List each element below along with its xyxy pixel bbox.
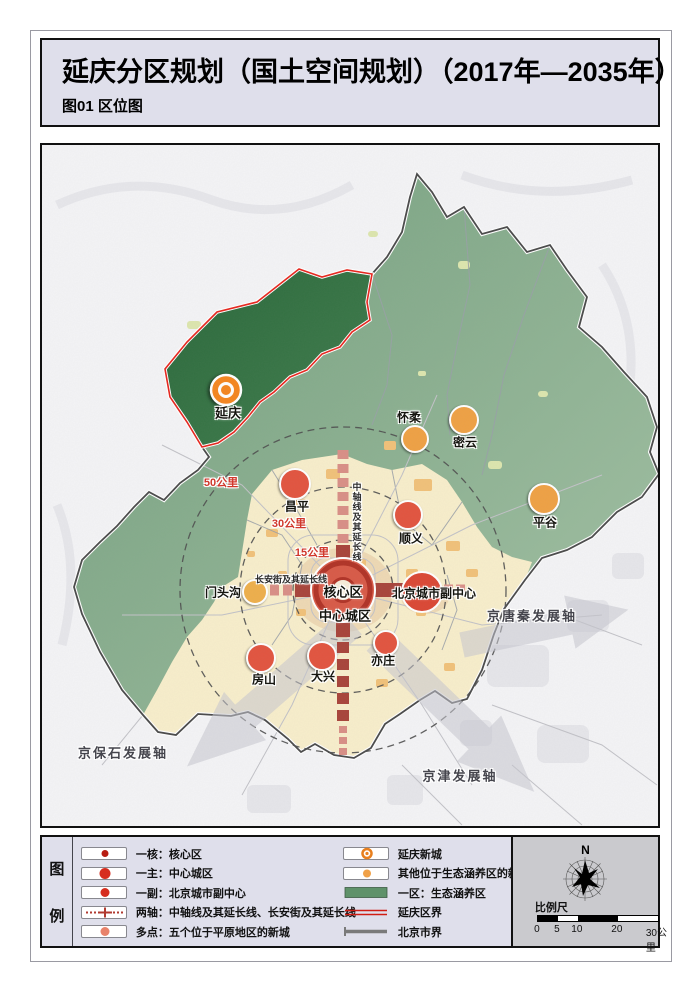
tick-20: 20 xyxy=(611,924,622,935)
label-yizhuang: 亦庄 xyxy=(371,652,395,669)
axis-line-icon xyxy=(81,906,127,919)
legend-item-beijing-border: 北京市界 xyxy=(343,924,511,939)
legend-item-main-city: 一主：中心城区 xyxy=(81,866,343,881)
label-mentougou: 门头沟 xyxy=(205,584,241,601)
legend-item-label: 一副：北京城市副中心 xyxy=(136,885,246,901)
tick-30km: 30公里 xyxy=(646,924,674,954)
label-axis-jingtangqin: 京唐秦发展轴 xyxy=(487,606,577,625)
label-central-city: 中心城区 xyxy=(319,606,371,625)
legend-item-yanqing-border: 延庆区界 xyxy=(343,905,511,920)
label-miyun: 密云 xyxy=(453,434,477,451)
legend-item-core: 一核：核心区 xyxy=(81,846,343,861)
label-core-area: 核心区 xyxy=(323,582,362,601)
label-fangshan: 房山 xyxy=(252,671,276,688)
label-pinggu: 平谷 xyxy=(533,514,557,531)
legend-item-label: 北京市界 xyxy=(398,924,442,940)
tick-10: 10 xyxy=(571,924,582,935)
legend-header: 图 例 xyxy=(42,837,73,946)
scalebar-segment xyxy=(558,916,578,921)
label-axis-jingjin: 京津发展轴 xyxy=(422,766,497,785)
label-daxing: 大兴 xyxy=(311,668,335,685)
scalebar-segment xyxy=(538,916,558,921)
label-axis-jingbaoshi: 京保石发展轴 xyxy=(78,743,168,762)
legend-item-label: 一核：核心区 xyxy=(136,846,202,862)
label-changping: 昌平 xyxy=(285,498,309,515)
eco-zone-swatch-icon xyxy=(343,886,389,899)
beijing-border-line-icon xyxy=(343,925,389,938)
yanqing-border-line-icon xyxy=(343,906,389,919)
scalebar-title: 比例尺 xyxy=(535,899,568,915)
legend-item-eco-zone: 一区：生态涵养区 xyxy=(343,885,511,900)
legend-header-char-1: 图 xyxy=(49,858,64,879)
eco-new-town-dot-icon xyxy=(343,867,389,880)
main-city-dot-icon xyxy=(81,867,127,880)
page: 延庆分区规划（国土空间规划）（2017年—2035年） 图01 区位图 xyxy=(0,0,700,990)
legend-column-right: 延庆新城 其他位于生态涵养区的新城 一区：生态涵养区 延庆区界 xyxy=(343,846,511,939)
sub-center-dot-icon xyxy=(81,886,127,899)
core-dot-icon xyxy=(81,847,127,860)
scalebar-segment xyxy=(618,916,658,921)
legend: 图 例 一核：核心区 一主：中心城区 一副：北京城市副中心 xyxy=(40,835,660,948)
legend-item-label: 多点：五个位于平原地区的新城 xyxy=(136,924,290,940)
scalebar xyxy=(537,915,659,922)
legend-item-label: 一区：生态涵养区 xyxy=(398,885,486,901)
legend-header-char-2: 例 xyxy=(49,905,64,926)
scalebar-segment xyxy=(578,916,618,921)
legend-item-sub-center: 一副：北京城市副中心 xyxy=(81,885,343,900)
label-corridor-changan: 长安街及其延长线 xyxy=(255,573,327,586)
legend-column-left: 一核：核心区 一主：中心城区 一副：北京城市副中心 xyxy=(81,846,343,939)
scale-panel: N 比例尺 0 5 10 xyxy=(511,837,658,946)
legend-item-yanqing-new-town: 延庆新城 xyxy=(343,846,511,861)
page-title: 延庆分区规划（国土空间规划）（2017年—2035年） xyxy=(62,50,658,89)
legend-item-label: 一主：中心城区 xyxy=(136,865,213,881)
legend-columns: 一核：核心区 一主：中心城区 一副：北京城市副中心 xyxy=(73,837,511,946)
compass-rose-icon xyxy=(561,855,609,903)
legend-item-label: 两轴：中轴线及其延长线、长安街及其延长线 xyxy=(136,904,356,920)
label-ring-15km: 15公里 xyxy=(295,544,329,560)
label-ring-50km: 50公里 xyxy=(204,474,238,490)
legend-item-eco-new-town: 其他位于生态涵养区的新城 xyxy=(343,866,511,881)
label-sub-center: 北京城市副中心 xyxy=(392,585,476,602)
plain-new-town-dot-icon xyxy=(81,925,127,938)
label-shunyi: 顺义 xyxy=(399,530,423,547)
tick-0: 0 xyxy=(534,924,540,935)
yanqing-donut-icon xyxy=(343,847,389,860)
label-huairou: 怀柔 xyxy=(397,409,421,426)
legend-item-two-axes: 两轴：中轴线及其延长线、长安街及其延长线 xyxy=(81,905,343,920)
page-subtitle: 图01 区位图 xyxy=(62,95,658,116)
tick-5: 5 xyxy=(554,924,560,935)
legend-item-label: 延庆区界 xyxy=(398,904,442,920)
scalebar-ticks: 0 5 10 20 30公里 xyxy=(513,924,688,936)
title-box: 延庆分区规划（国土空间规划）（2017年—2035年） 图01 区位图 xyxy=(40,38,660,127)
legend-item-label: 延庆新城 xyxy=(398,846,442,862)
label-corridor-central-axis: 中轴线及其延长线 xyxy=(351,482,364,562)
map-canvas: 延庆 怀柔 密云 平谷 昌平 顺义 门头沟 核心区 北京城市副中心 中心城区 亦… xyxy=(40,143,660,828)
legend-item-multi-points: 多点：五个位于平原地区的新城 xyxy=(81,924,343,939)
label-ring-30km: 30公里 xyxy=(272,515,306,531)
label-yanqing: 延庆 xyxy=(215,403,241,422)
